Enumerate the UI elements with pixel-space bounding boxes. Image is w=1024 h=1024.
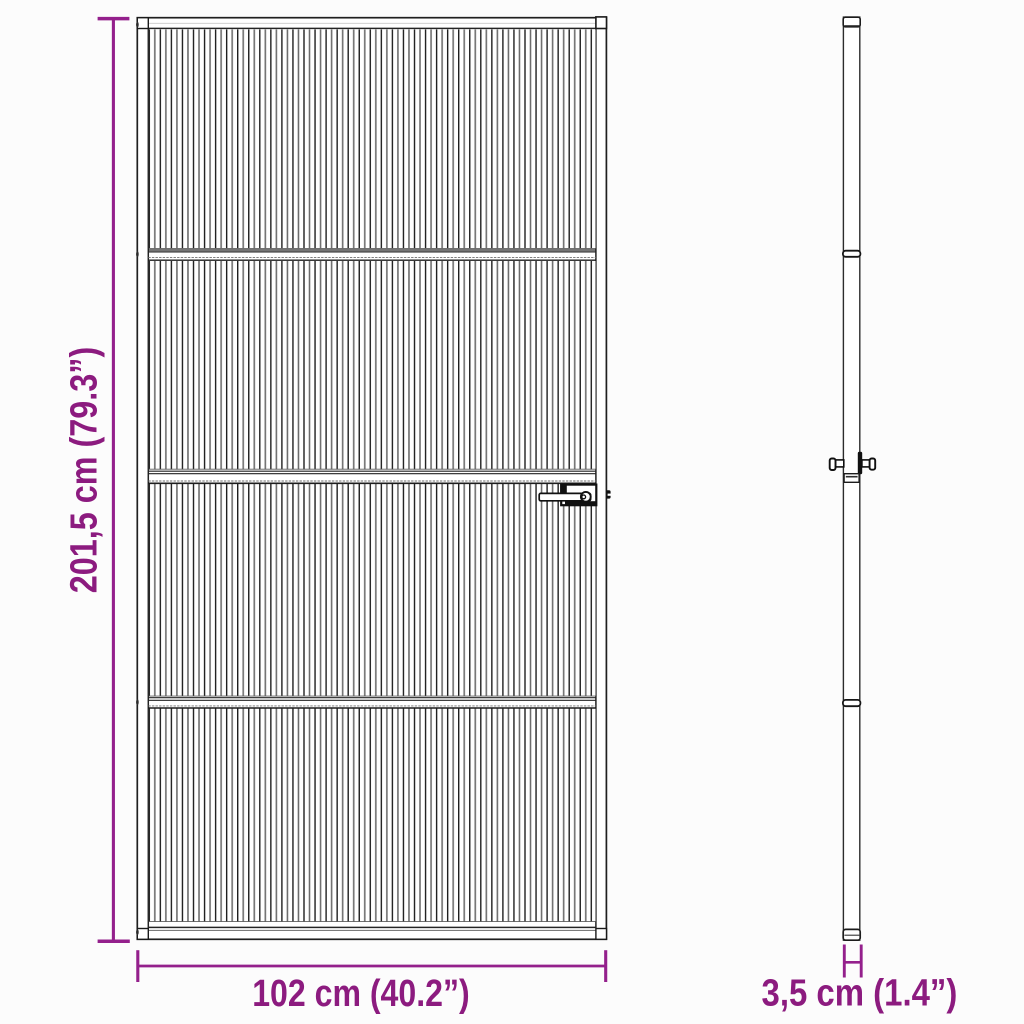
svg-text:201,5 cm (79.3”): 201,5 cm (79.3”) bbox=[63, 347, 105, 594]
svg-text:3,5 cm (1.4”): 3,5 cm (1.4”) bbox=[762, 971, 958, 1014]
svg-text:102 cm (40.2”): 102 cm (40.2”) bbox=[252, 972, 469, 1014]
